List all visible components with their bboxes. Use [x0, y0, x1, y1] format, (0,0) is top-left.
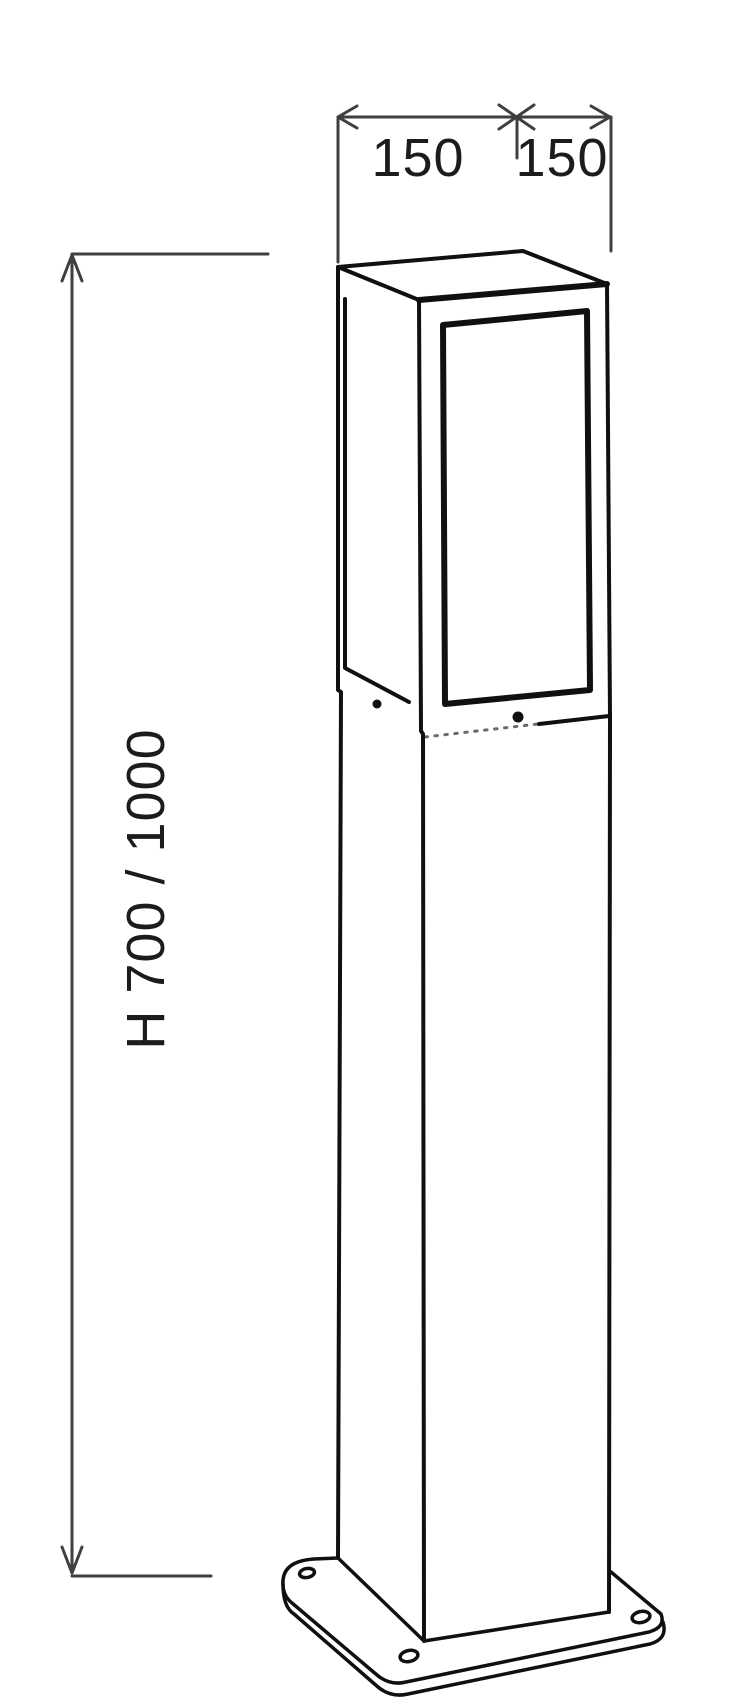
width-dimension-left: 150 — [338, 105, 534, 262]
screw-dot-front — [513, 712, 524, 723]
head-left-glass-slot — [345, 299, 409, 702]
base-plate-top-outline — [283, 1558, 662, 1683]
head-post-seam-hidden — [425, 724, 538, 737]
post-plate-junction — [338, 1558, 609, 1641]
mounting-hole-right — [631, 1610, 651, 1625]
width-dimension-right: 150 — [515, 106, 611, 251]
head-front-top-edge — [419, 284, 607, 300]
mounting-hole-left — [299, 1567, 315, 1578]
post-front-left-edge — [419, 300, 424, 1641]
technical-drawing-canvas: 150 150 H 700 / 1000 — [0, 0, 730, 1698]
base-plate — [283, 1558, 664, 1695]
screw-dot-left — [373, 700, 382, 709]
mounting-hole-front — [399, 1649, 419, 1664]
height-dimension: H 700 / 1000 — [62, 254, 268, 1576]
width-left-label: 150 — [371, 128, 464, 188]
head-glass-panel — [443, 311, 590, 704]
post-left-edge — [338, 267, 341, 1558]
head-bottom-edge-right — [539, 716, 609, 724]
post-right-edge — [607, 284, 610, 1612]
bollard-head — [338, 251, 609, 737]
bollard-post — [338, 267, 610, 1641]
height-label: H 700 / 1000 — [116, 728, 176, 1049]
bollard-dimension-drawing: 150 150 H 700 / 1000 — [0, 0, 730, 1698]
width-right-label: 150 — [515, 128, 608, 188]
